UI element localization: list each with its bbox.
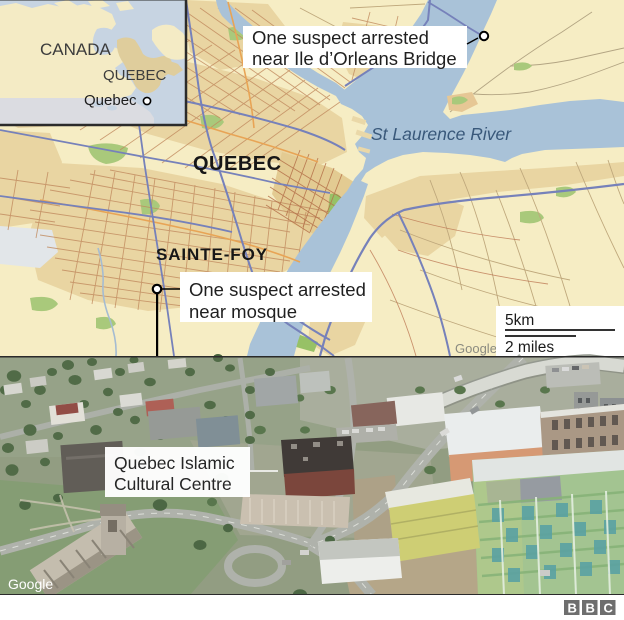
- svg-text:St Laurence River: St Laurence River: [371, 124, 512, 144]
- svg-text:B: B: [568, 601, 577, 616]
- svg-text:Google: Google: [455, 341, 497, 356]
- svg-text:B: B: [586, 601, 595, 616]
- svg-text:5km: 5km: [505, 312, 534, 329]
- svg-text:near mosque: near mosque: [189, 301, 297, 322]
- svg-text:Quebec: Quebec: [84, 92, 137, 109]
- svg-text:QUEBEC: QUEBEC: [193, 153, 282, 175]
- svg-text:SAINTE-FOY: SAINTE-FOY: [156, 245, 268, 264]
- svg-text:Quebec Islamic: Quebec Islamic: [114, 453, 235, 473]
- svg-text:QUEBEC: QUEBEC: [103, 67, 167, 84]
- svg-text:2 miles: 2 miles: [505, 339, 554, 356]
- svg-text:near Ile d’Orleans Bridge: near Ile d’Orleans Bridge: [252, 48, 457, 69]
- svg-text:One suspect arrested: One suspect arrested: [189, 279, 366, 300]
- svg-text:Cultural Centre: Cultural Centre: [114, 474, 232, 494]
- svg-text:One suspect arrested: One suspect arrested: [252, 27, 429, 48]
- svg-text:CANADA: CANADA: [40, 40, 112, 59]
- svg-text:C: C: [604, 601, 614, 616]
